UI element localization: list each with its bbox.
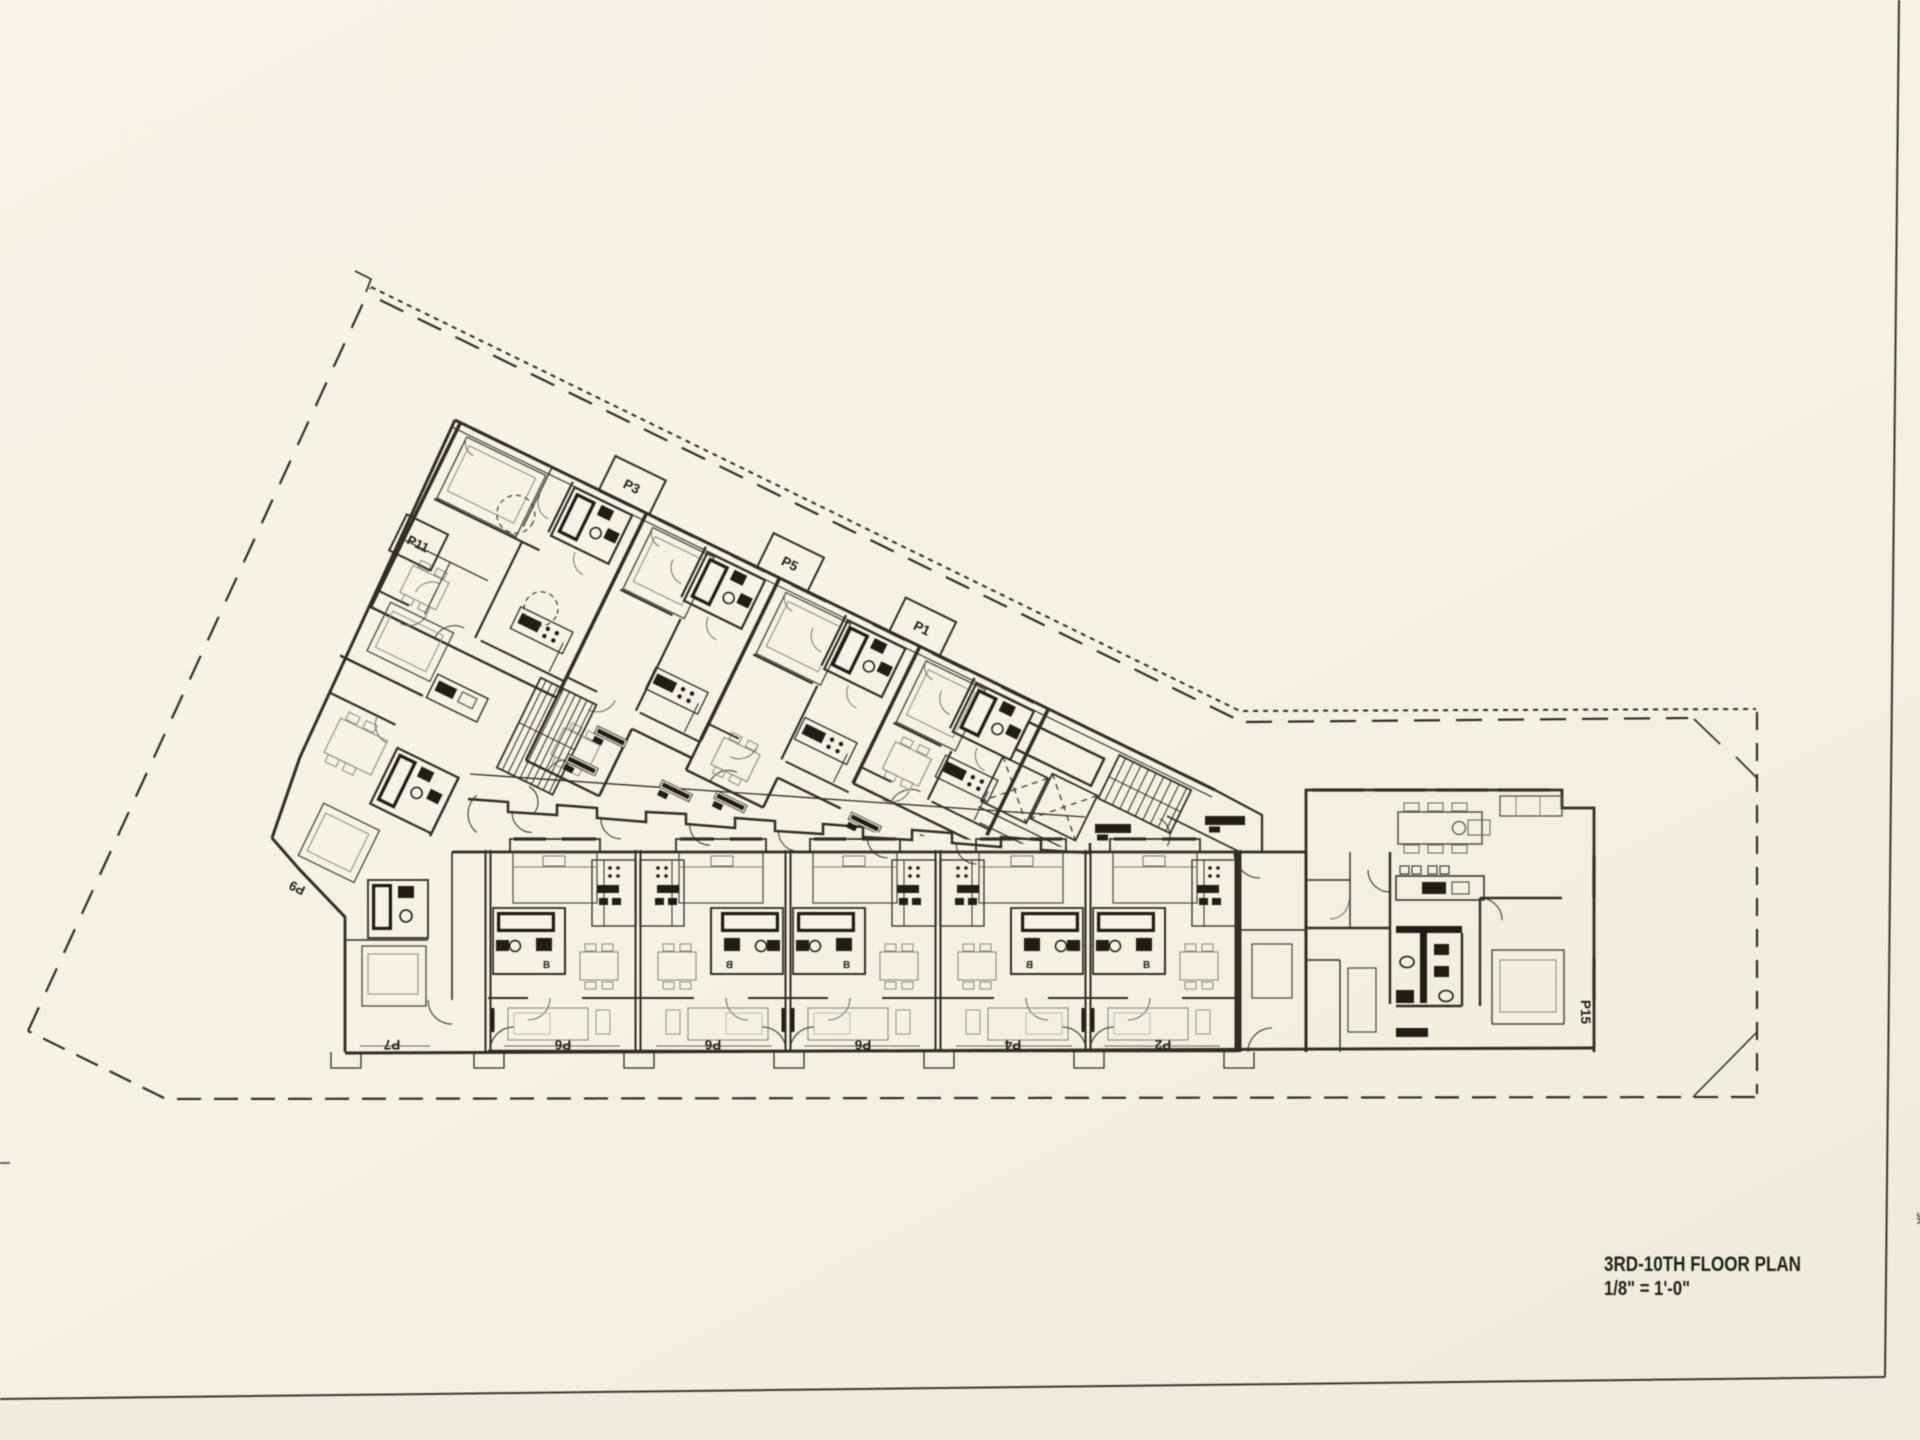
svg-text:3RD-10TH FLOOR PLAN: 3RD-10TH FLOOR PLAN <box>1604 1253 1801 1276</box>
svg-text:P15: P15 <box>1578 1000 1593 1025</box>
svg-text:B: B <box>843 960 850 971</box>
svg-text:P6: P6 <box>854 1037 871 1052</box>
svg-text:P2: P2 <box>1155 1037 1172 1052</box>
svg-text:P4: P4 <box>1004 1037 1021 1052</box>
svg-text:P6: P6 <box>704 1037 721 1052</box>
svg-text:B: B <box>1026 960 1033 971</box>
svg-text:1/8" = 1'-0": 1/8" = 1'-0" <box>1604 1278 1690 1300</box>
svg-text:P7: P7 <box>384 1037 401 1052</box>
svg-text:B: B <box>726 960 733 971</box>
svg-text:B: B <box>1143 960 1150 971</box>
svg-text:B: B <box>543 960 550 971</box>
svg-text:3R: 3R <box>1914 1212 1920 1226</box>
svg-text:P6: P6 <box>554 1037 571 1052</box>
